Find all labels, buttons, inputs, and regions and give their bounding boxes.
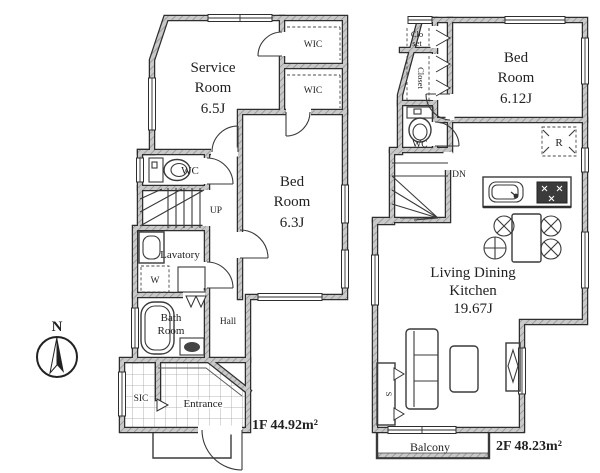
floorplan-page: N Service Room 6.5J WIC WIC WC UP Lavato… (0, 0, 600, 473)
stove-icon (537, 182, 567, 203)
svg-text:6.5J: 6.5J (201, 101, 226, 117)
closet-side-label: Closet (416, 67, 426, 89)
dn-label: DN (452, 170, 466, 180)
svg-text:Room: Room (158, 325, 185, 337)
svg-text:Room: Room (274, 194, 311, 210)
entrance-label: Entrance (183, 398, 222, 410)
washer-label: W (151, 276, 160, 286)
ldk-label: Living Dining (430, 265, 516, 281)
svg-text:set: set (412, 38, 422, 48)
dining-chair-icon (484, 237, 506, 259)
floor1-area-label: 1F 44.92m² (252, 418, 318, 433)
wc2f-label: WC (412, 140, 427, 150)
balcony-label: Balcony (410, 440, 450, 454)
svg-text:6.3J: 6.3J (280, 215, 305, 231)
bedroom1f-label: Bed (280, 174, 305, 190)
service-room-label: Service (191, 60, 236, 76)
compass-north-label: N (52, 319, 63, 335)
balcony-sliding-door (388, 427, 456, 434)
compass-needle-icon (57, 337, 64, 373)
floorplan-drawing: N Service Room 6.5J WIC WIC WC UP Lavato… (0, 0, 600, 473)
floor2-area-label: 2F 48.23m² (496, 439, 562, 454)
wic-lower-label: WIC (304, 86, 322, 96)
compass: N (37, 319, 77, 377)
hall-label: Hall (220, 317, 237, 327)
storage-label: S (384, 392, 394, 397)
lavatory-label: Lavatory (160, 249, 200, 261)
svg-text:Room: Room (498, 70, 535, 86)
sic-label: SIC (134, 394, 149, 404)
wic-upper-label: WIC (304, 40, 322, 50)
svg-text:6.12J: 6.12J (500, 91, 532, 107)
svg-text:Room: Room (195, 80, 232, 96)
bathroom-label: Bath (161, 312, 182, 324)
wc-label: WC (181, 165, 199, 177)
svg-text:19.67J: 19.67J (453, 301, 493, 317)
bedroom2f-label: Bed (504, 50, 529, 66)
up-label: UP (210, 206, 222, 216)
refrigerator-label: R (555, 137, 563, 149)
compass-needle-icon (50, 337, 57, 373)
svg-text:Kitchen: Kitchen (449, 283, 497, 299)
